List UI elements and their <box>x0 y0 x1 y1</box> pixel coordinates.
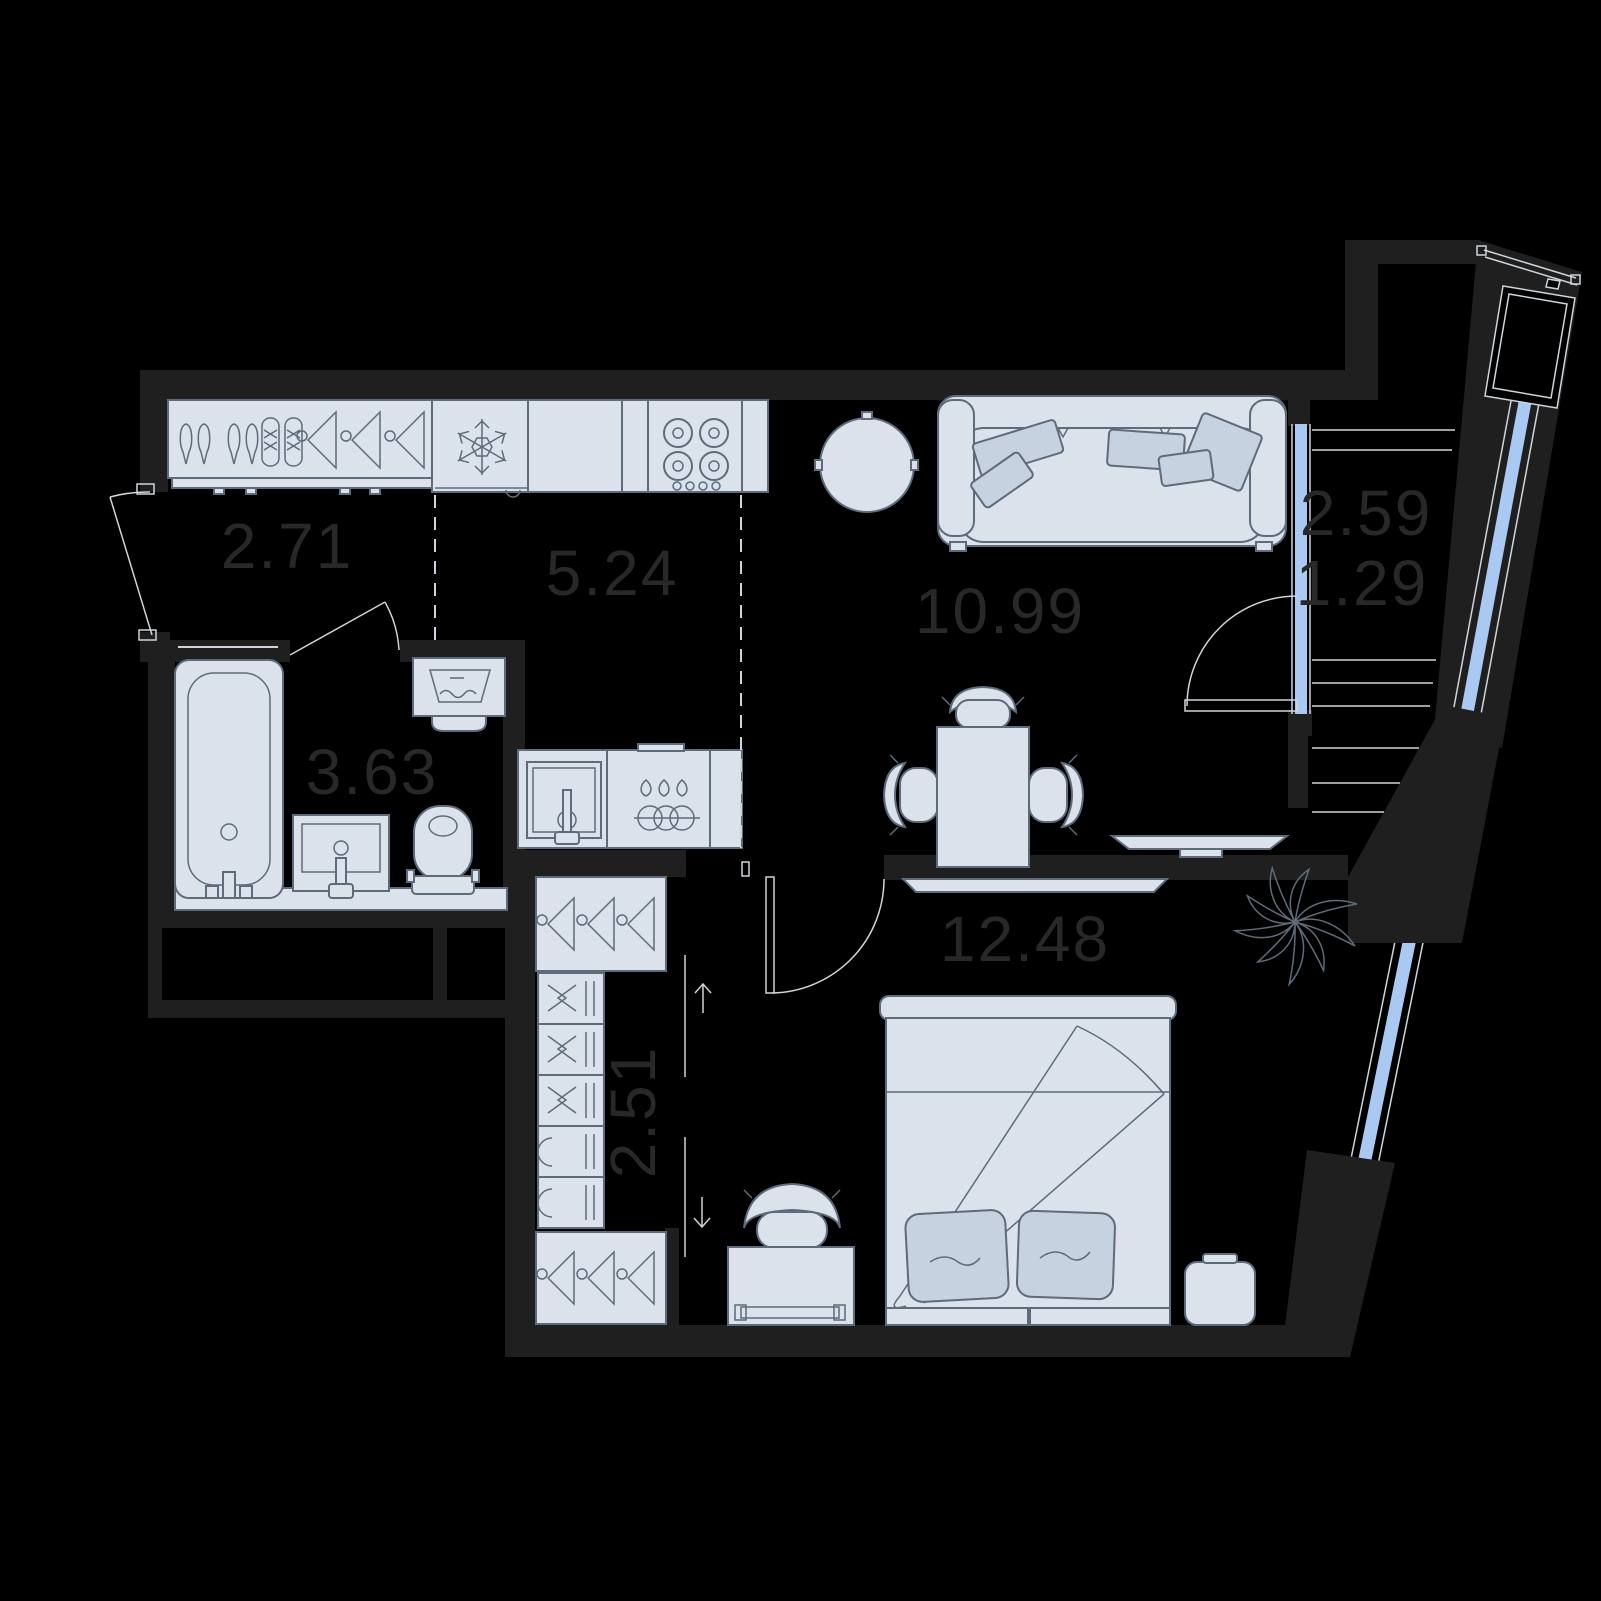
round-table-icon <box>815 412 918 512</box>
balcony-door <box>1185 596 1297 711</box>
kitchen-lower-counter <box>518 744 742 848</box>
desk-icon <box>728 1184 854 1325</box>
sofa-icon <box>938 396 1286 551</box>
wardrobe-shelves <box>538 973 604 1228</box>
label-wardrobe: 2.51 <box>597 1046 669 1179</box>
bathroom-door <box>290 602 399 655</box>
corridor-passage-marks <box>685 955 711 1257</box>
wardrobe-hanger-section-top <box>536 877 666 971</box>
bed-icon <box>880 996 1176 1325</box>
washing-machine-icon <box>413 658 505 731</box>
shoe-rack <box>168 400 432 494</box>
entry-door <box>110 484 156 640</box>
kitchen-counter <box>432 400 768 497</box>
toilet-icon <box>407 806 479 894</box>
floor-plan-svg: 2.71 5.24 10.99 2.59 1.29 3.63 12.48 2.5… <box>0 0 1601 1601</box>
label-bedroom: 12.48 <box>940 903 1110 975</box>
wardrobe-hanger-section-bottom <box>536 1232 666 1324</box>
label-hallway: 2.71 <box>221 510 354 582</box>
floor-plan: 2.71 5.24 10.99 2.59 1.29 3.63 12.48 2.5… <box>0 0 1601 1601</box>
label-balcony-reduced: 1.29 <box>1296 547 1429 619</box>
label-living-room: 10.99 <box>915 575 1085 647</box>
label-balcony: 2.59 <box>1300 477 1433 549</box>
dining-table-icon <box>884 687 1083 867</box>
plant-icon <box>1235 866 1357 985</box>
arrow-down-icon <box>694 1197 710 1227</box>
label-bathroom: 3.63 <box>306 736 439 808</box>
room-labels: 2.71 5.24 10.99 2.59 1.29 3.63 12.48 2.5… <box>221 477 1433 1178</box>
bathtub-icon <box>175 660 283 898</box>
shaft-voids <box>162 928 505 1000</box>
tv-icon <box>1112 836 1287 857</box>
nightstand-icon <box>1185 1254 1255 1325</box>
bedroom-door <box>742 862 884 993</box>
arrow-up-icon <box>695 984 711 1013</box>
washbasin-icon <box>293 815 389 898</box>
tv-bedroom-icon <box>903 879 1167 892</box>
label-kitchen: 5.24 <box>546 537 679 609</box>
